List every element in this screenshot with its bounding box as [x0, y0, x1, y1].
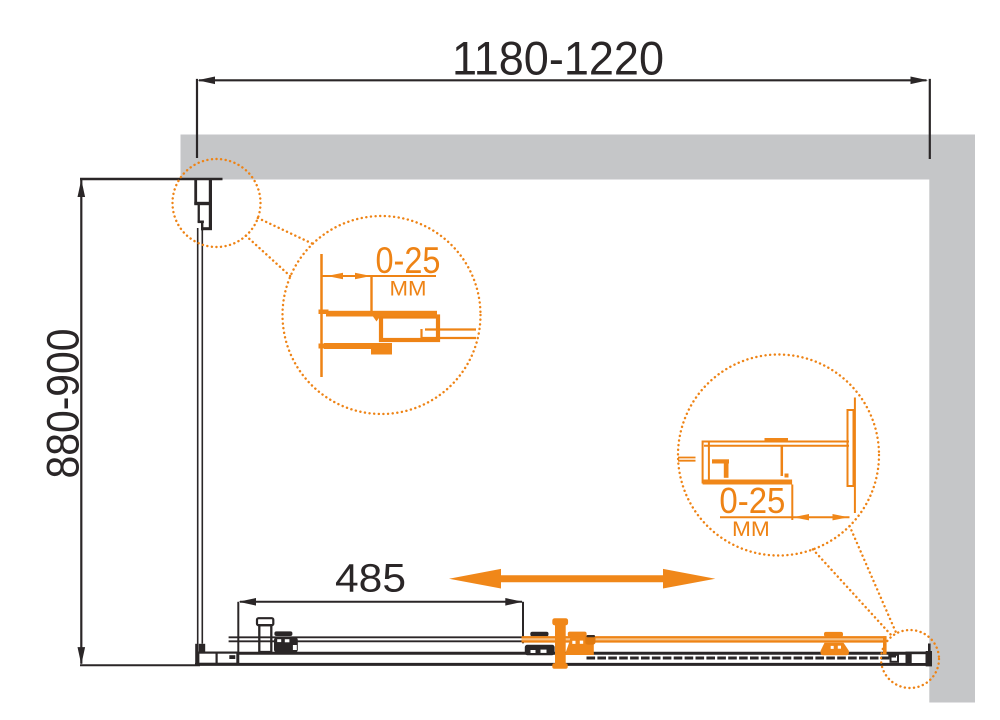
svg-text:0-25: 0-25 [719, 480, 785, 521]
svg-text:MM: MM [732, 518, 770, 541]
svg-text:1180-1220: 1180-1220 [452, 32, 664, 85]
svg-text:880-900: 880-900 [37, 329, 88, 479]
svg-text:MM: MM [390, 278, 427, 301]
svg-text:485: 485 [335, 556, 406, 600]
svg-text:0-25: 0-25 [376, 240, 441, 281]
